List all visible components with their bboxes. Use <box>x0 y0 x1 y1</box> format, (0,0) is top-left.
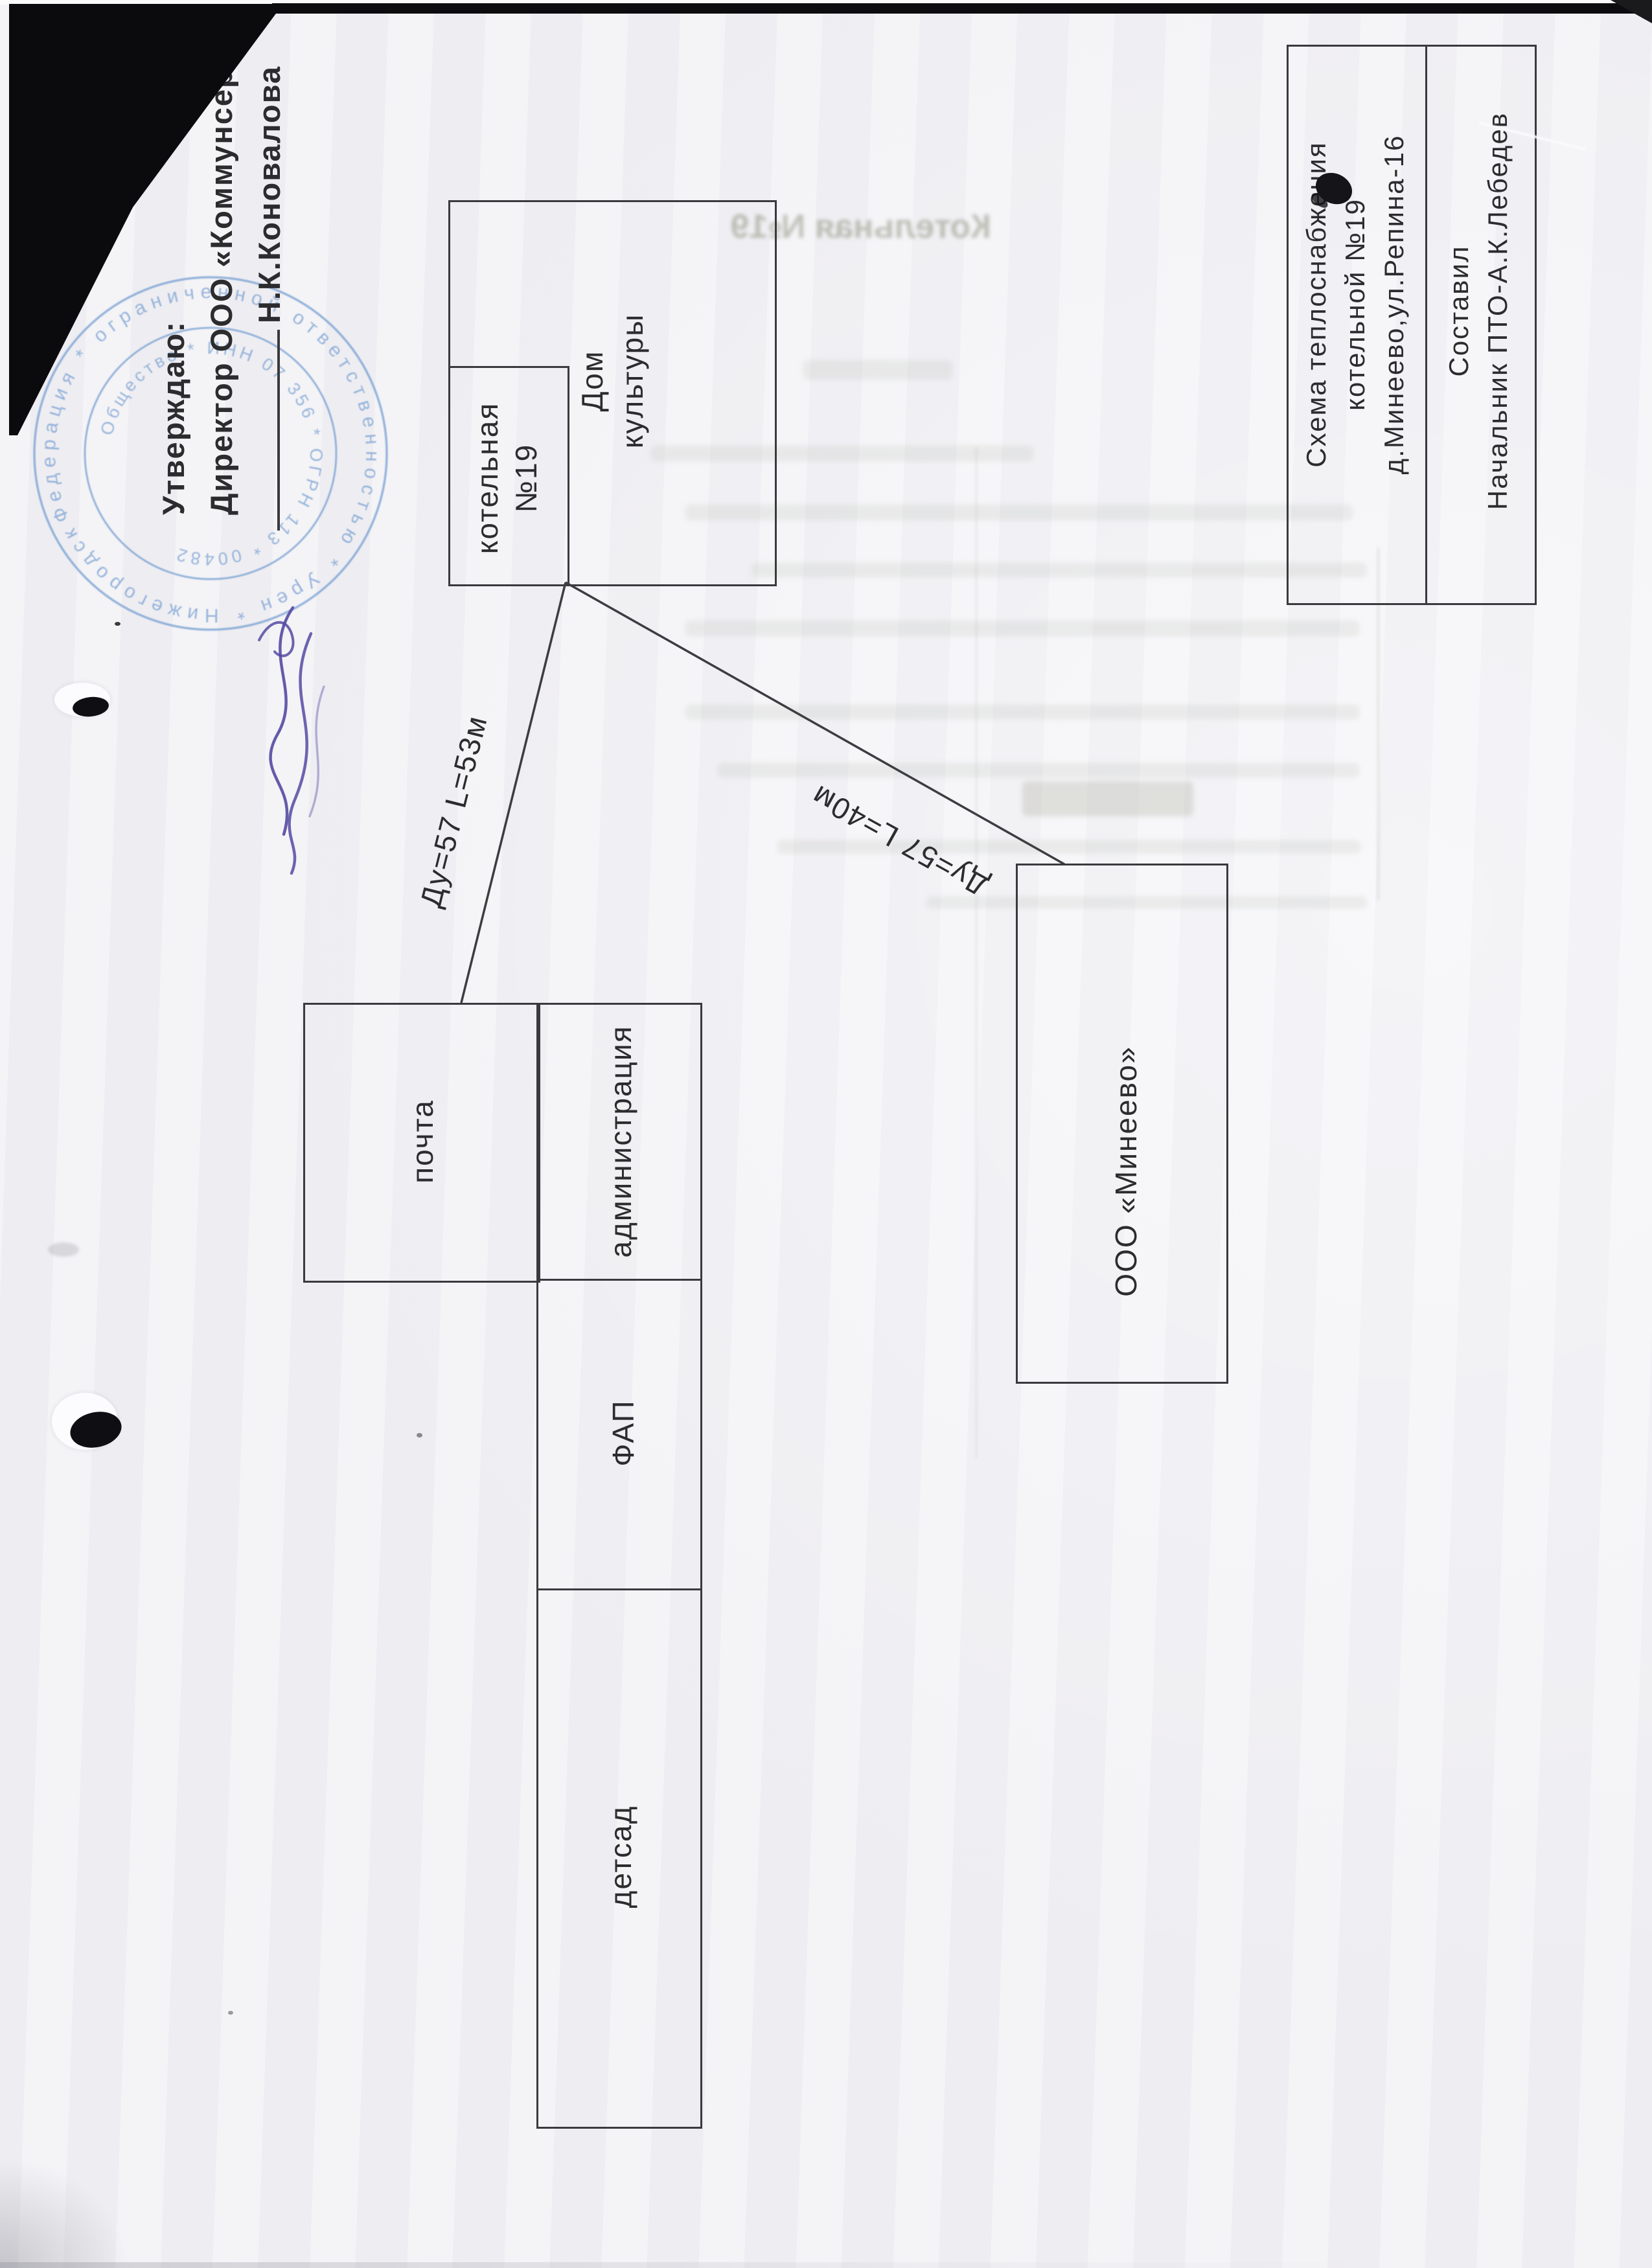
approval-word: Утверждаю: <box>150 74 198 541</box>
gray-smudge <box>48 1243 79 1257</box>
title-line: Схема теплоснабжения <box>1297 29 1336 580</box>
bleedthrough-table-row-smudge <box>685 705 1359 719</box>
label-line: №19 <box>507 371 545 585</box>
paper-crease <box>976 447 977 1458</box>
label-line: культуры <box>612 258 652 504</box>
scanner-top-black-edge <box>272 3 1652 14</box>
label-detsad: детсад <box>600 1753 641 1960</box>
punch-hole-top-shadow <box>72 695 110 718</box>
scanner-top-margin <box>0 0 1652 5</box>
bleedthrough-strong-smudge <box>1022 781 1193 816</box>
scanned-heat-supply-scheme-page: Котельная №19 Федерация * ограниченной о… <box>0 0 1652 2268</box>
punch-hole-top <box>54 683 110 716</box>
bottom-left-corner-shadow <box>0 2157 130 2268</box>
pipe-label-du57-l40: Ду=57 L=40м <box>765 755 1033 927</box>
punch-hole-bottom-shadow <box>67 1407 124 1452</box>
title-block-scheme-text: Схема теплоснабжения котельной №19 д.Мин… <box>1294 29 1417 580</box>
bottom-scan-edge-shadow <box>0 2262 1652 2268</box>
scanner-top-right-dark-corner <box>1611 0 1652 23</box>
title-line: Составил <box>1440 36 1478 586</box>
label-fap: ФАП <box>602 1342 644 1524</box>
pipe-label-du57-l53: Ду=57 L=53м <box>400 668 507 954</box>
label-kotelnaya-19: котельная №19 <box>465 371 549 585</box>
title-block-divider <box>1425 46 1427 604</box>
approval-signature-line: Н.К.Коновалова <box>246 74 293 541</box>
approval-block: Утверждаю: Директор ООО «Коммунсервис» Н… <box>147 74 296 541</box>
bleedthrough-text-smudge <box>803 360 952 380</box>
label-line: Дом <box>572 258 612 504</box>
divider-fap-detsad <box>538 1588 701 1590</box>
punch-hole-bottom <box>52 1393 118 1450</box>
approval-name: Н.К.Коновалова <box>252 65 286 323</box>
title-block-author-text: Составил Начальник ПТО-А.К.Лебедев <box>1436 36 1520 586</box>
title-line: Начальник ПТО-А.К.Лебедев <box>1478 36 1517 586</box>
title-line: д.Минеево,ул.Репина-16 <box>1375 29 1414 580</box>
dust-speck <box>228 2011 233 2015</box>
dust-speck <box>417 1433 422 1438</box>
bleedthrough-table-row-smudge <box>685 505 1353 520</box>
title-line: котельной №19 <box>1336 29 1375 580</box>
pipe-line-to-mineevo <box>566 582 1064 864</box>
label-dom-kultury: Дом культуры <box>567 258 658 504</box>
bleedthrough-table-row-smudge <box>751 563 1367 577</box>
label-administration: администрация <box>600 973 641 1310</box>
label-pochta: почта <box>402 1051 443 1232</box>
bleedthrough-table-row-smudge <box>685 621 1359 636</box>
signature-line <box>255 330 280 531</box>
label-line: котельная <box>468 371 507 585</box>
approval-director-line: Директор ООО «Коммунсервис» <box>198 74 246 541</box>
label-mineevo: ООО «Минеево» <box>1105 1003 1147 1340</box>
